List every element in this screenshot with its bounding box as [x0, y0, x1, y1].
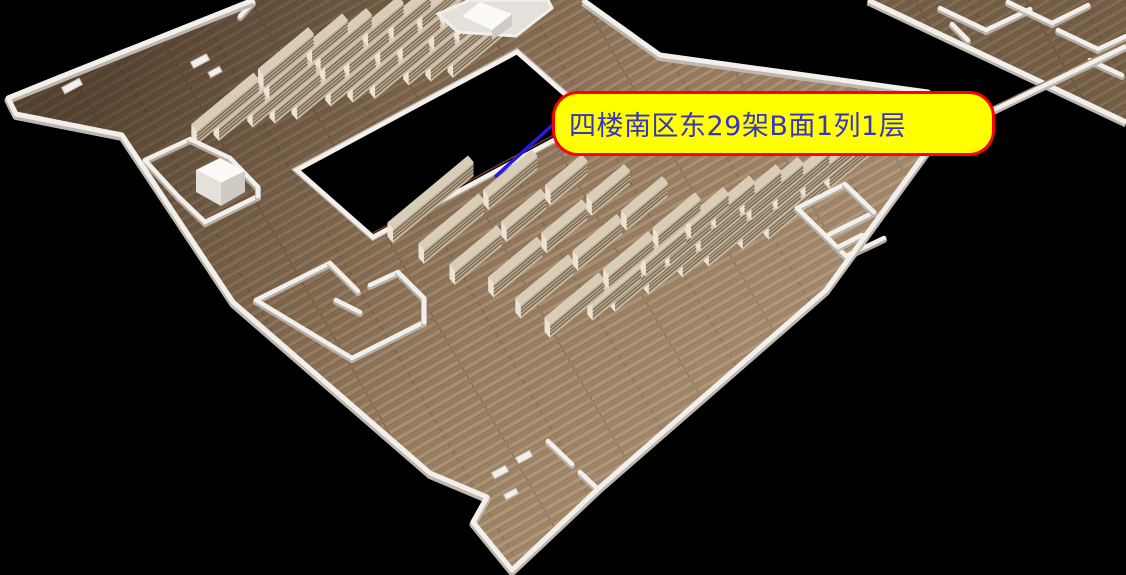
- location-tooltip: 四楼南区东29架B面1列1层: [552, 91, 995, 156]
- location-tooltip-text: 四楼南区东29架B面1列1层: [569, 104, 906, 143]
- floor-map-3d-view[interactable]: [0, 0, 1126, 575]
- library-3d-map-app: 四楼南区东29架B面1列1层: [0, 0, 1126, 575]
